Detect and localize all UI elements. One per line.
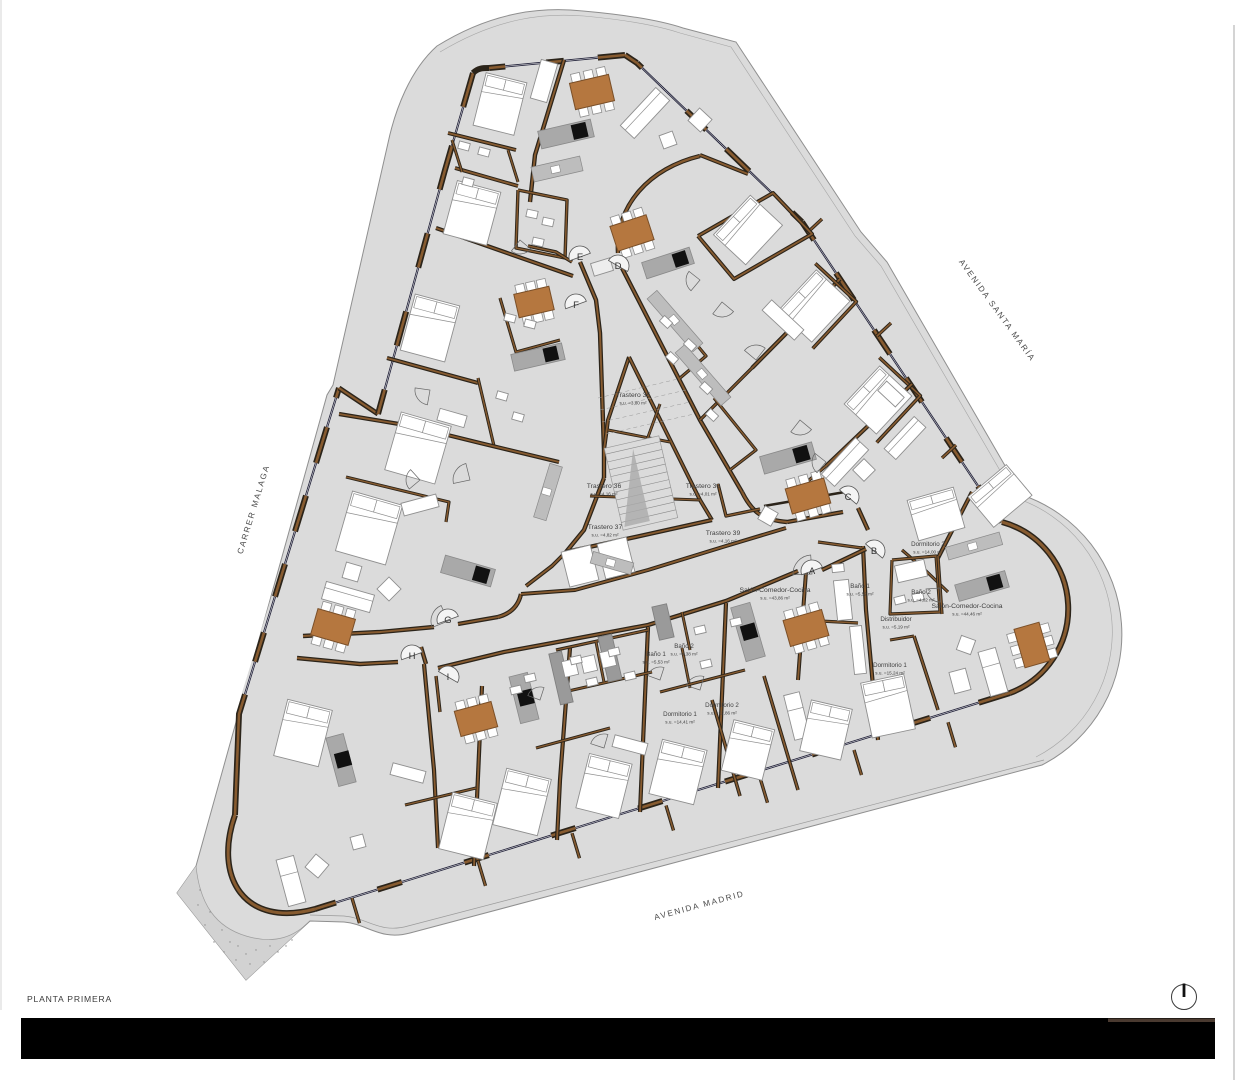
- svg-text:Baño 2: Baño 2: [674, 643, 694, 650]
- svg-text:s.u. =5,53 m²: s.u. =5,53 m²: [643, 660, 670, 665]
- svg-text:s.u. =4,02 m²: s.u. =4,02 m²: [908, 598, 935, 603]
- svg-text:s.u. =14,00 m²: s.u. =14,00 m²: [913, 550, 943, 555]
- svg-text:s.u. =12,86 m²: s.u. =12,86 m²: [707, 711, 737, 716]
- svg-text:Trastero 39: Trastero 39: [706, 530, 741, 537]
- svg-text:Baño 1: Baño 1: [646, 651, 666, 658]
- svg-text:A: A: [809, 566, 816, 577]
- svg-text:F: F: [573, 300, 579, 311]
- svg-text:s.u. =5,52 m²: s.u. =5,52 m²: [847, 592, 874, 597]
- svg-text:s.u. =3,80 m²: s.u. =3,80 m²: [620, 401, 647, 406]
- svg-text:Dormitorio 1: Dormitorio 1: [873, 662, 907, 669]
- svg-text:Salón-Comedor-Cocina: Salón-Comedor-Cocina: [739, 587, 810, 594]
- svg-text:s.u. =5,19 m²: s.u. =5,19 m²: [883, 625, 910, 630]
- svg-text:Baño 1: Baño 1: [850, 583, 870, 590]
- svg-text:s.u. =15,24 m²: s.u. =15,24 m²: [875, 671, 905, 676]
- svg-text:Dormitorio 2: Dormitorio 2: [911, 541, 945, 548]
- svg-text:s.u. =4,16 m²: s.u. =4,16 m²: [710, 539, 737, 544]
- svg-text:D: D: [615, 261, 622, 272]
- svg-text:s.u. =4,82 m²: s.u. =4,82 m²: [592, 533, 619, 538]
- svg-text:s.u. =4,01 m²: s.u. =4,01 m²: [690, 492, 717, 497]
- svg-text:Distribuidor: Distribuidor: [880, 616, 911, 623]
- svg-text:H: H: [409, 651, 416, 662]
- svg-text:B: B: [871, 546, 877, 557]
- svg-text:s.u. =44,46 m²: s.u. =44,46 m²: [952, 612, 982, 617]
- svg-text:I: I: [447, 672, 450, 683]
- svg-text:s.u. =43,86 m²: s.u. =43,86 m²: [760, 596, 790, 601]
- svg-text:C: C: [845, 492, 852, 503]
- svg-text:E: E: [577, 252, 583, 263]
- svg-text:Baño 2: Baño 2: [911, 589, 931, 596]
- svg-text:s.u. =4,38 m²: s.u. =4,38 m²: [671, 652, 698, 657]
- svg-text:Salón-Comedor-Cocina: Salón-Comedor-Cocina: [931, 603, 1002, 610]
- svg-text:Dormitorio 2: Dormitorio 2: [705, 702, 739, 709]
- svg-text:Trastero 37: Trastero 37: [588, 524, 623, 531]
- svg-text:Trastero 35: Trastero 35: [616, 392, 651, 399]
- svg-text:s.u. =4,16 m²: s.u. =4,16 m²: [591, 492, 618, 497]
- svg-text:s.u. =14,41 m²: s.u. =14,41 m²: [665, 720, 695, 725]
- svg-text:Dormitorio 1: Dormitorio 1: [663, 711, 697, 718]
- svg-text:PLANTA PRIMERA: PLANTA PRIMERA: [27, 994, 112, 1004]
- svg-text:Trastero 36: Trastero 36: [587, 483, 622, 490]
- svg-text:G: G: [444, 615, 451, 626]
- svg-text:Trastero 38: Trastero 38: [686, 483, 721, 490]
